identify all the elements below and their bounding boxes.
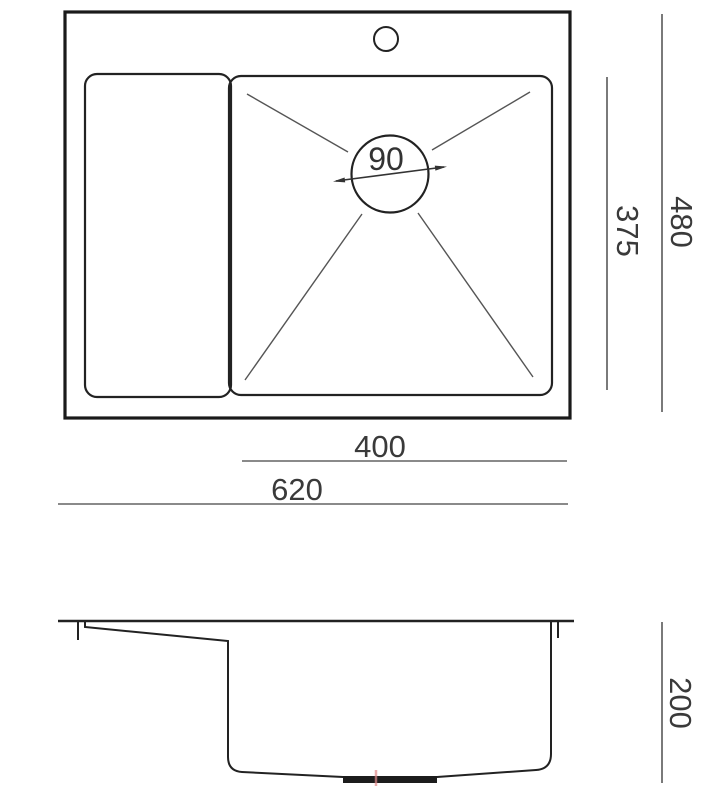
cross-line-bottom-right: [418, 213, 533, 377]
bowl-profile: [85, 622, 551, 777]
faucet-hole: [374, 27, 398, 51]
inner-height-label: 375: [612, 199, 644, 263]
bowl-width-label: 400: [330, 431, 430, 462]
sink-technical-drawing: 90 400 620 375 480 200: [0, 0, 714, 800]
drain-diameter-label: 90: [360, 143, 412, 175]
cross-line-top-right: [432, 92, 530, 150]
outer-height-label: 480: [666, 190, 698, 254]
drainboard-compartment: [85, 74, 231, 397]
drain-fitting: [343, 776, 437, 783]
cross-line-bottom-left: [245, 214, 362, 380]
outer-width-label: 620: [247, 474, 347, 505]
drawing-canvas: [0, 0, 714, 800]
depth-label: 200: [665, 671, 697, 735]
arrowhead-left: [333, 178, 345, 183]
arrowhead-right: [435, 166, 447, 171]
cross-line-top-left: [247, 94, 348, 152]
sink-bowl: [229, 76, 552, 395]
side-view: [58, 621, 662, 786]
